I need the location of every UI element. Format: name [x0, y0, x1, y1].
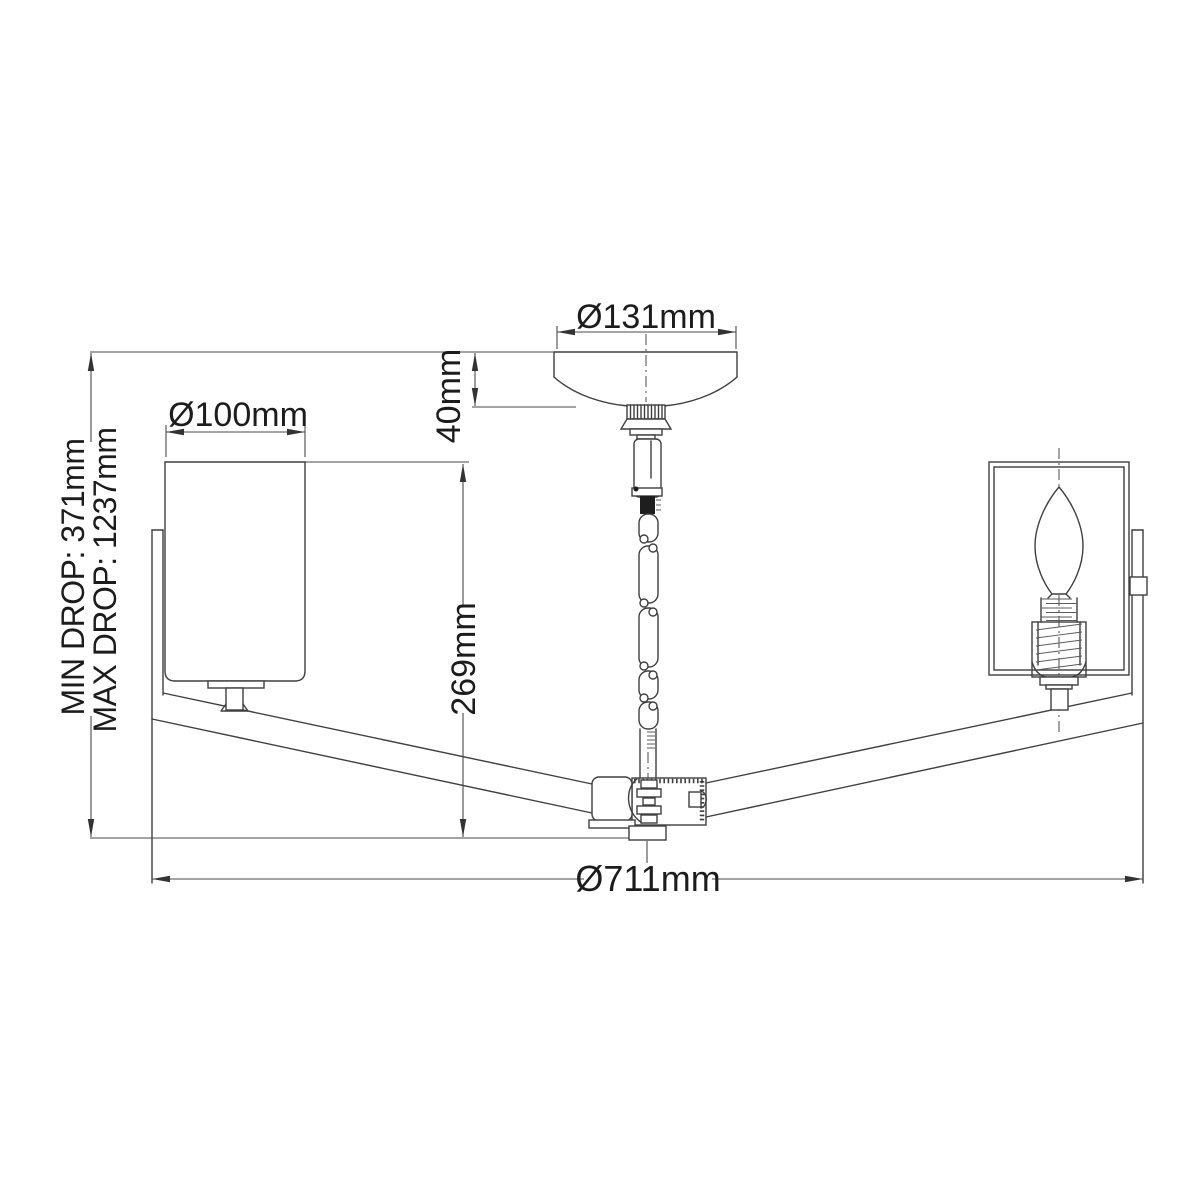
min-drop-label: MIN DROP: 371mm [55, 439, 91, 716]
canopy-connector [621, 405, 671, 439]
right-shade-section [989, 448, 1129, 732]
arrow-right-icon [1125, 876, 1143, 882]
shade-diameter-label: Ø100mm [168, 396, 308, 434]
dim-overall-diameter: Ø711mm [152, 858, 1143, 899]
dim-body-height: 269mm [445, 464, 483, 837]
left-shade-outline [165, 462, 305, 681]
arrow-left-icon [557, 329, 575, 335]
hub-side-bolt [689, 792, 701, 807]
left-candle-plate [208, 681, 264, 688]
chain [639, 514, 658, 778]
left-shade [165, 462, 305, 711]
arrow-down-icon [472, 388, 478, 406]
arrow-up-icon [460, 464, 466, 482]
left-candle-stem [226, 688, 243, 710]
overall-diameter-label: Ø711mm [575, 858, 720, 899]
arrow-up-icon [472, 353, 478, 371]
arrow-right-icon [718, 329, 736, 335]
dim-canopy-diameter: Ø131mm [557, 298, 736, 336]
dim-drop: MIN DROP: 371mm MAX DROP: 1237mm [55, 353, 123, 837]
chandelier-dimension-drawing: MIN DROP: 371mm MAX DROP: 1237mm 40mm Ø1… [0, 0, 1200, 1200]
dim-shade-diameter: Ø100mm [166, 396, 308, 435]
arrow-down-icon [88, 819, 94, 837]
chain-grip [640, 496, 655, 514]
canopy-diameter-label: Ø131mm [576, 298, 716, 336]
arrow-left-icon [152, 876, 170, 882]
stem-body [632, 439, 662, 514]
ceiling-canopy [554, 334, 737, 406]
body-height-label: 269mm [445, 602, 483, 715]
arrow-down-icon [460, 819, 466, 837]
thumbscrew [1130, 577, 1147, 595]
right-candle-stem [1051, 689, 1068, 710]
arrow-up-icon [88, 353, 94, 371]
canopy-height-label: 40mm [430, 349, 468, 443]
hub-base-plate [629, 826, 666, 840]
center-hub [589, 777, 706, 840]
dim-canopy-height: 40mm [430, 349, 478, 443]
max-drop-label: MAX DROP: 1237mm [87, 428, 123, 733]
dimension-drawing-page: MIN DROP: 371mm MAX DROP: 1237mm 40mm Ø1… [0, 0, 1200, 1200]
